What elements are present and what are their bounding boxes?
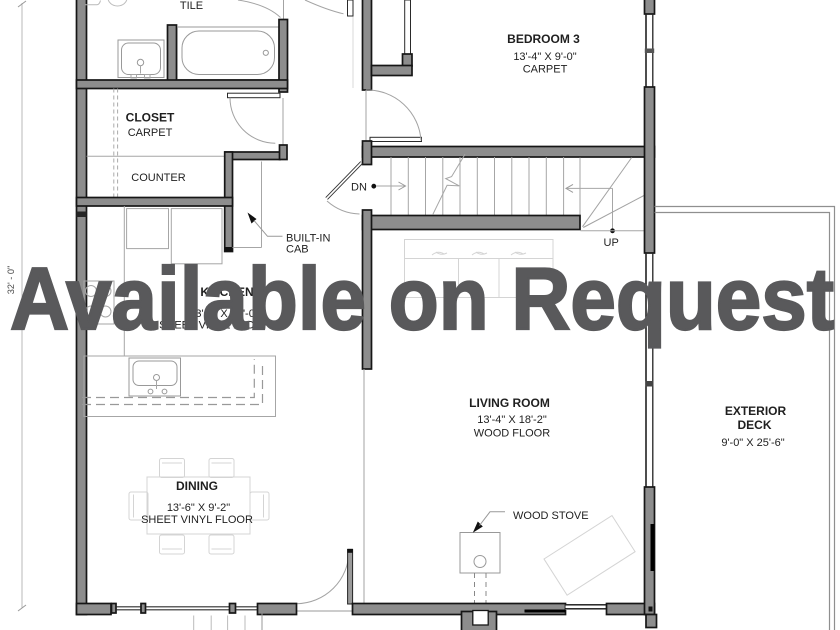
- svg-text:EXTERIOR: EXTERIOR: [725, 404, 787, 418]
- svg-text:DECK: DECK: [737, 418, 771, 432]
- svg-text:13'-6" X 9'-2": 13'-6" X 9'-2": [167, 502, 230, 514]
- svg-text:COUNTER: COUNTER: [131, 172, 185, 184]
- svg-text:13'-4" X 18'-2": 13'-4" X 18'-2": [477, 414, 547, 426]
- svg-text:CLOSET: CLOSET: [126, 111, 175, 125]
- svg-text:BEDROOM 3: BEDROOM 3: [507, 32, 580, 46]
- svg-text:CARPET: CARPET: [523, 64, 568, 76]
- svg-text:UP: UP: [604, 237, 619, 249]
- svg-text:DINING: DINING: [176, 479, 218, 493]
- svg-text:TILE: TILE: [180, 0, 203, 12]
- svg-text:CARPET: CARPET: [128, 127, 173, 139]
- svg-text:WOOD FLOOR: WOOD FLOOR: [474, 428, 550, 440]
- svg-text:LIVING ROOM: LIVING ROOM: [469, 396, 550, 410]
- svg-text:Available on Request: Available on Request: [10, 249, 834, 348]
- svg-text:9'-0" X 25'-6": 9'-0" X 25'-6": [721, 437, 784, 449]
- svg-text:WOOD STOVE: WOOD STOVE: [513, 510, 589, 522]
- svg-text:SHEET VINYL FLOOR: SHEET VINYL FLOOR: [141, 514, 253, 526]
- svg-text:DN: DN: [351, 182, 367, 194]
- svg-text:13'-4" X 9'-0": 13'-4" X 9'-0": [513, 51, 576, 63]
